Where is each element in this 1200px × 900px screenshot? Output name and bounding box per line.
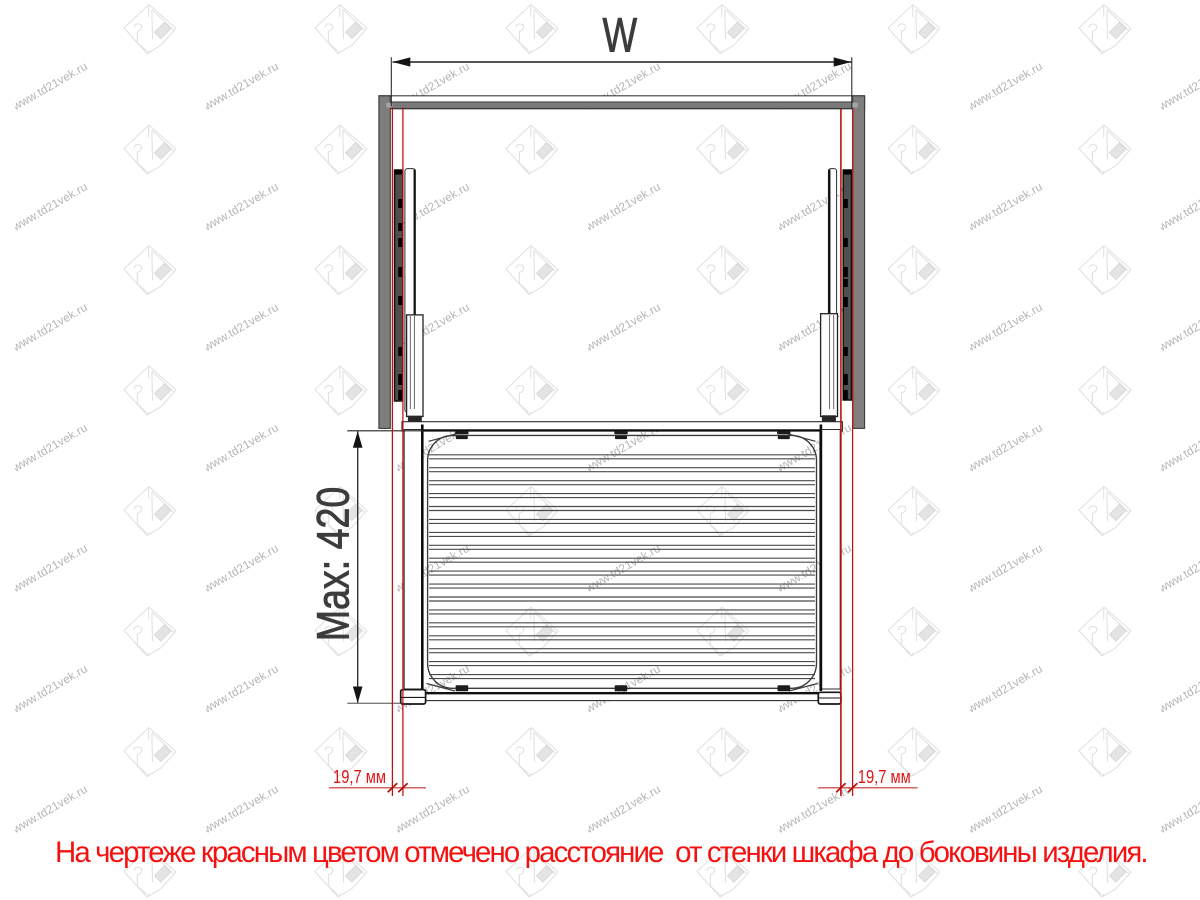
svg-text:19,7 мм: 19,7 мм xyxy=(333,767,386,787)
svg-text:На чертеже красным цветом отме: На чертеже красным цветом отмечено расст… xyxy=(55,836,1149,869)
svg-text:19,7 мм: 19,7 мм xyxy=(858,767,911,787)
svg-text:W: W xyxy=(603,8,638,62)
svg-text:Max: 420: Max: 420 xyxy=(308,487,359,642)
